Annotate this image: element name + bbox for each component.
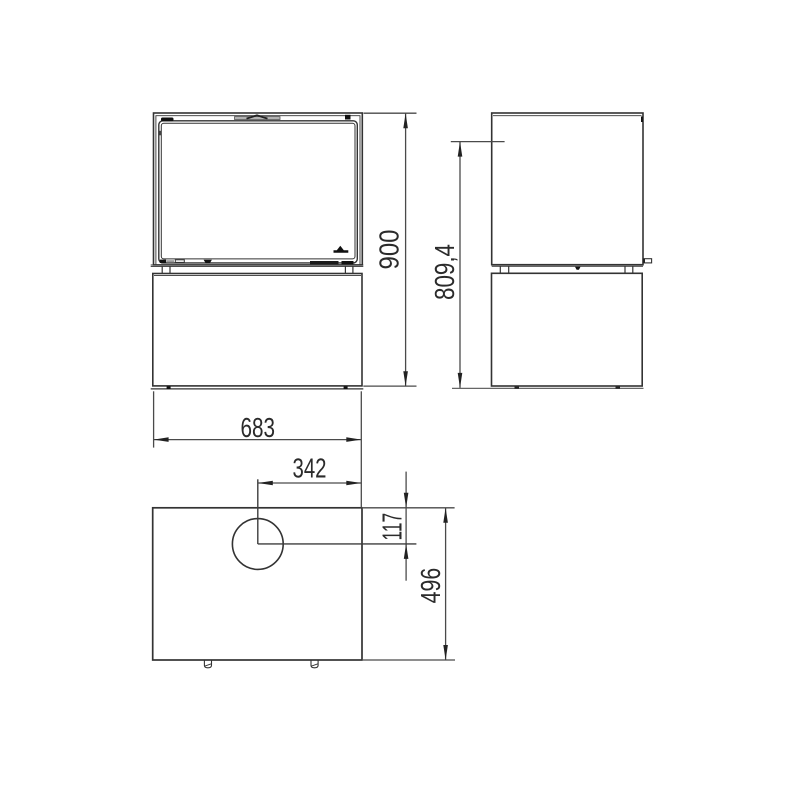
svg-text:117: 117	[377, 513, 408, 541]
svg-text:683: 683	[241, 412, 276, 443]
svg-text:809,4: 809,4	[429, 244, 460, 300]
svg-text:342: 342	[293, 453, 327, 484]
svg-text:496: 496	[415, 568, 446, 604]
svg-text:900: 900	[373, 230, 404, 270]
